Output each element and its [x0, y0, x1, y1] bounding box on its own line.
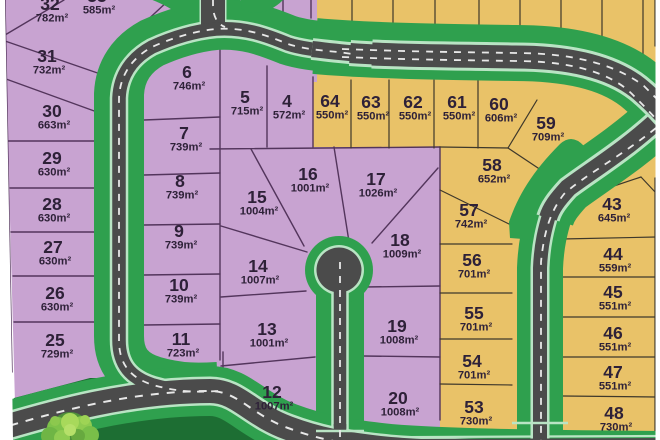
- svg-text:1008m²: 1008m²: [381, 407, 420, 419]
- svg-text:18: 18: [390, 230, 410, 250]
- svg-text:44: 44: [603, 244, 623, 264]
- svg-text:62: 62: [403, 92, 423, 112]
- svg-text:58: 58: [482, 155, 502, 175]
- svg-text:645m²: 645m²: [598, 213, 631, 225]
- svg-text:739m²: 739m²: [165, 294, 198, 306]
- svg-text:17: 17: [366, 169, 385, 189]
- svg-text:16: 16: [298, 164, 318, 184]
- svg-text:56: 56: [462, 250, 482, 270]
- svg-text:739m²: 739m²: [165, 240, 198, 252]
- svg-text:550m²: 550m²: [316, 110, 349, 122]
- svg-text:606m²: 606m²: [485, 113, 518, 125]
- svg-text:25: 25: [45, 330, 65, 350]
- svg-text:61: 61: [447, 92, 467, 112]
- svg-text:55: 55: [464, 303, 484, 323]
- svg-text:64: 64: [320, 91, 340, 111]
- svg-text:46: 46: [603, 323, 623, 343]
- svg-text:715m²: 715m²: [231, 106, 264, 118]
- svg-text:730m²: 730m²: [460, 416, 493, 428]
- svg-text:701m²: 701m²: [458, 269, 491, 281]
- svg-text:572m²: 572m²: [273, 110, 306, 122]
- svg-text:550m²: 550m²: [357, 111, 390, 123]
- svg-text:27: 27: [43, 237, 62, 257]
- svg-text:559m²: 559m²: [599, 263, 632, 275]
- svg-text:43: 43: [602, 194, 622, 214]
- svg-text:5: 5: [240, 87, 250, 107]
- svg-text:31: 31: [37, 46, 57, 66]
- svg-text:739m²: 739m²: [166, 190, 199, 202]
- svg-text:30: 30: [42, 101, 62, 121]
- svg-text:701m²: 701m²: [458, 370, 491, 382]
- svg-text:28: 28: [42, 194, 62, 214]
- svg-text:1007m²: 1007m²: [255, 401, 294, 413]
- svg-text:57: 57: [459, 200, 478, 220]
- svg-text:1001m²: 1001m²: [291, 183, 330, 195]
- svg-text:20: 20: [388, 388, 408, 408]
- svg-text:47: 47: [603, 362, 622, 382]
- svg-text:630m²: 630m²: [38, 213, 71, 225]
- svg-text:630m²: 630m²: [38, 167, 71, 179]
- svg-text:732m²: 732m²: [33, 65, 66, 77]
- svg-text:15: 15: [247, 187, 267, 207]
- svg-text:663m²: 663m²: [38, 120, 71, 132]
- svg-text:551m²: 551m²: [599, 301, 632, 313]
- svg-text:701m²: 701m²: [460, 322, 493, 334]
- svg-text:739m²: 739m²: [170, 142, 203, 154]
- svg-text:1009m²: 1009m²: [383, 249, 422, 261]
- svg-text:6: 6: [182, 62, 192, 82]
- svg-text:8: 8: [175, 171, 185, 191]
- svg-text:551m²: 551m²: [599, 342, 632, 354]
- svg-text:10: 10: [169, 275, 189, 295]
- svg-text:550m²: 550m²: [443, 111, 476, 123]
- svg-text:13: 13: [257, 319, 277, 339]
- svg-text:4: 4: [282, 91, 292, 111]
- svg-text:12: 12: [262, 382, 282, 402]
- svg-text:742m²: 742m²: [455, 219, 488, 231]
- svg-text:630m²: 630m²: [41, 302, 74, 314]
- svg-text:1026m²: 1026m²: [359, 188, 398, 200]
- svg-text:53: 53: [464, 397, 484, 417]
- svg-text:1004m²: 1004m²: [240, 206, 279, 218]
- svg-text:730m²: 730m²: [600, 422, 633, 434]
- svg-text:1001m²: 1001m²: [250, 338, 289, 350]
- svg-text:59: 59: [536, 113, 556, 133]
- svg-text:709m²: 709m²: [532, 132, 565, 144]
- svg-text:26: 26: [45, 283, 65, 303]
- svg-text:9: 9: [174, 221, 184, 241]
- svg-text:746m²: 746m²: [173, 81, 206, 93]
- svg-text:723m²: 723m²: [167, 348, 200, 360]
- svg-text:7: 7: [179, 123, 189, 143]
- svg-text:63: 63: [361, 92, 381, 112]
- svg-text:14: 14: [248, 256, 268, 276]
- svg-text:45: 45: [603, 282, 623, 302]
- svg-text:1007m²: 1007m²: [241, 275, 280, 287]
- svg-text:48: 48: [604, 403, 624, 423]
- svg-text:550m²: 550m²: [399, 111, 432, 123]
- svg-text:782m²: 782m²: [36, 13, 69, 25]
- svg-text:630m²: 630m²: [39, 256, 72, 268]
- svg-text:729m²: 729m²: [41, 349, 74, 361]
- svg-text:60: 60: [489, 94, 509, 114]
- svg-text:11: 11: [172, 329, 191, 349]
- svg-text:1008m²: 1008m²: [380, 335, 419, 347]
- svg-text:19: 19: [387, 316, 407, 336]
- svg-text:29: 29: [42, 148, 62, 168]
- svg-text:551m²: 551m²: [599, 381, 632, 393]
- svg-text:585m²: 585m²: [83, 5, 116, 17]
- svg-text:652m²: 652m²: [478, 174, 511, 186]
- svg-text:54: 54: [462, 351, 482, 371]
